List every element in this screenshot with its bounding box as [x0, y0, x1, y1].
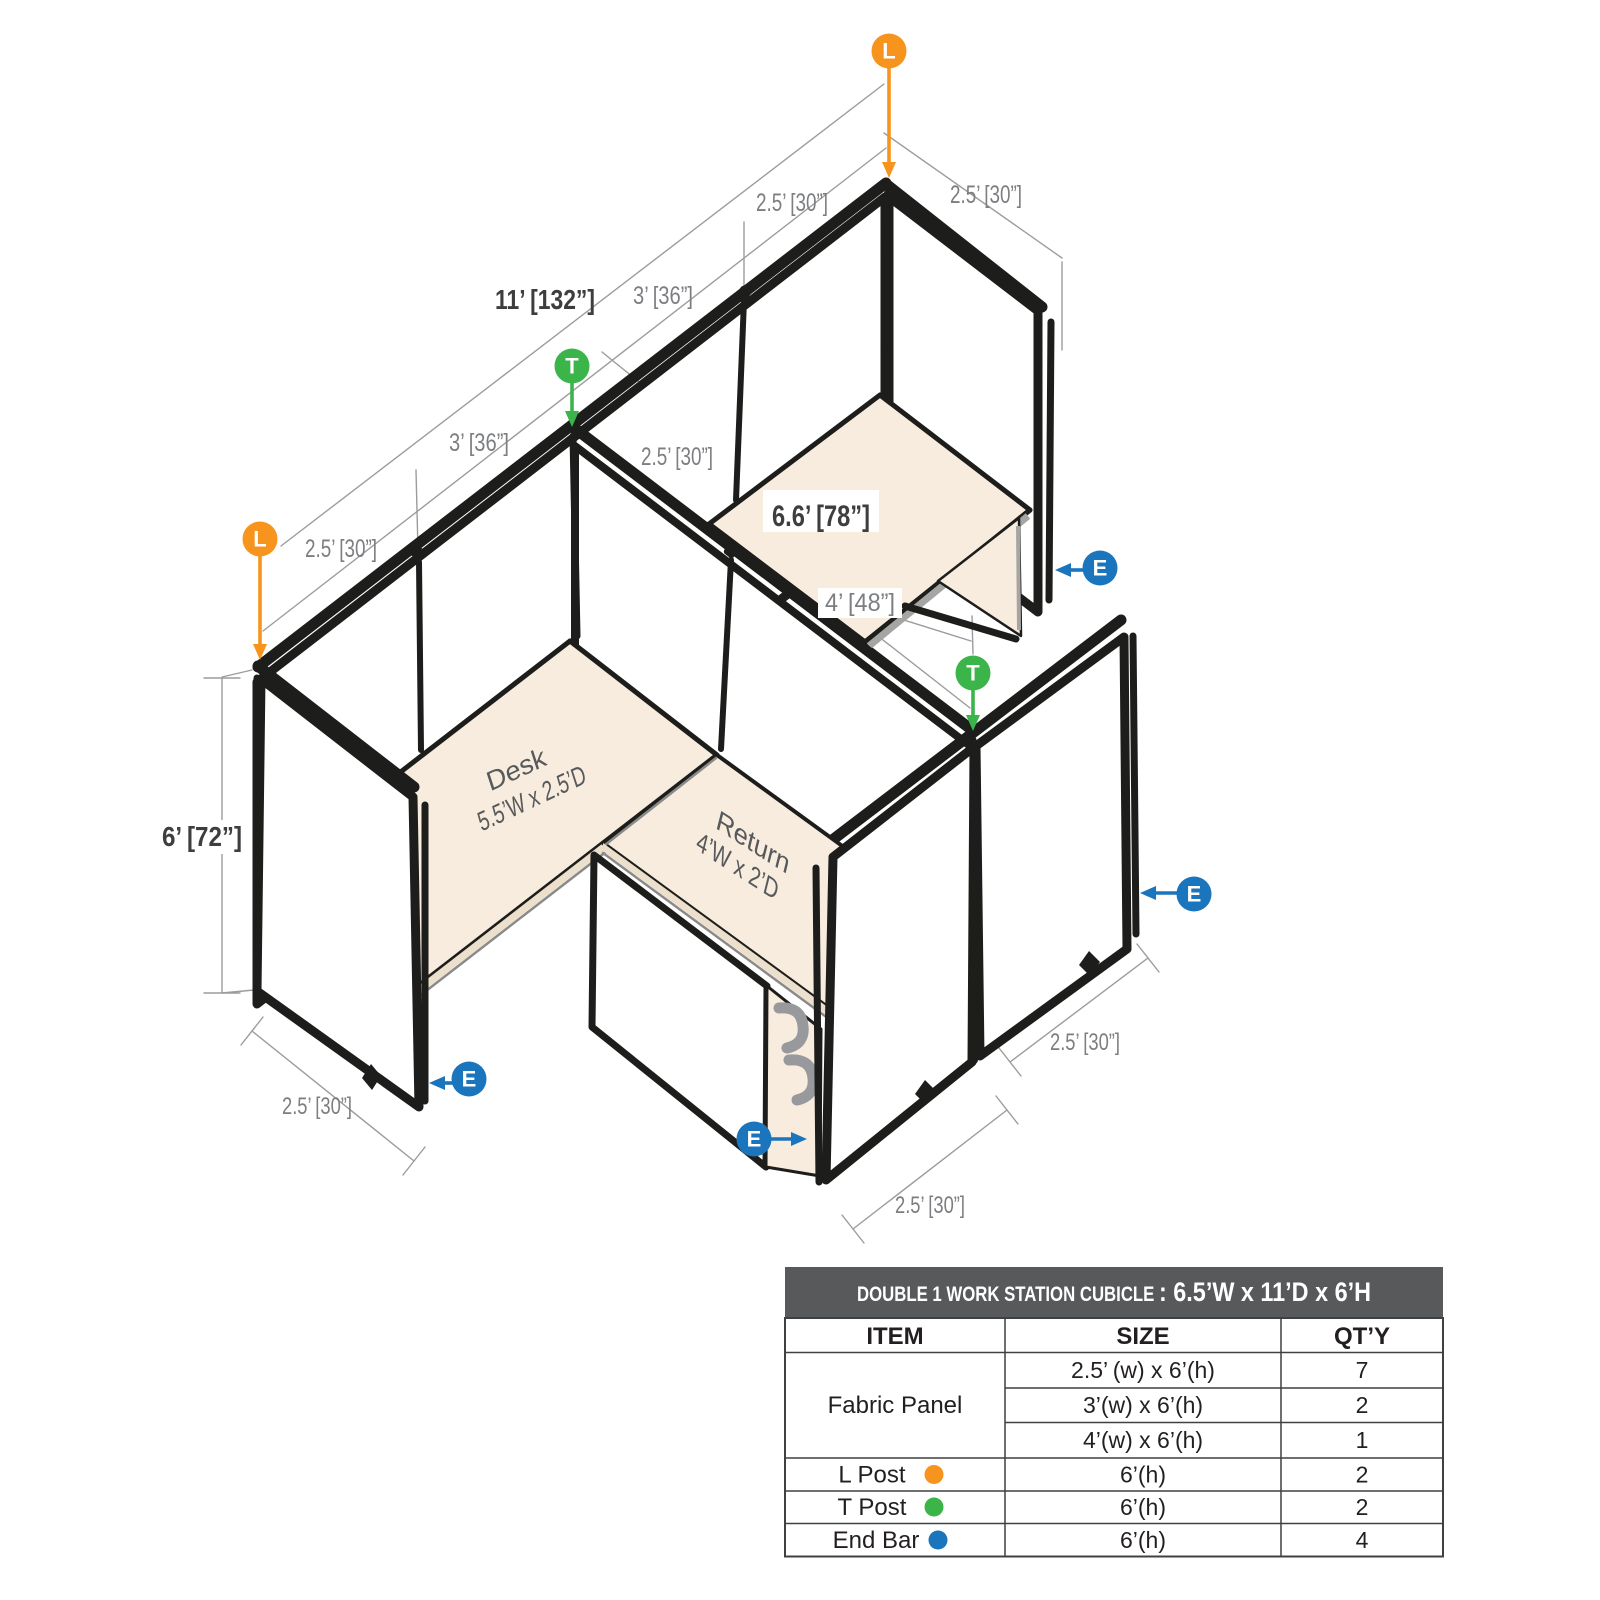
svg-text:2: 2 — [1356, 1462, 1369, 1488]
svg-text:L: L — [882, 39, 895, 64]
svg-text:End Bar: End Bar — [833, 1527, 920, 1554]
svg-text:2.5’ [30”]: 2.5’ [30”] — [282, 1093, 352, 1120]
svg-text:T: T — [966, 661, 980, 686]
svg-text:ITEM: ITEM — [866, 1323, 923, 1350]
svg-text:2.5’ (w) x 6’(h): 2.5’ (w) x 6’(h) — [1071, 1357, 1215, 1383]
svg-text:2: 2 — [1356, 1494, 1369, 1520]
svg-text:2.5’ [30”]: 2.5’ [30”] — [641, 443, 713, 471]
svg-text:E: E — [462, 1067, 477, 1092]
svg-text:T: T — [565, 354, 579, 379]
svg-text:2.5’ [30”]: 2.5’ [30”] — [950, 181, 1022, 209]
svg-text:2.5’ [30”]: 2.5’ [30”] — [1050, 1029, 1120, 1056]
svg-text:L: L — [253, 527, 266, 552]
svg-text:6.6’ [78”]: 6.6’ [78”] — [772, 500, 870, 533]
svg-text:3’(w) x 6’(h): 3’(w) x 6’(h) — [1083, 1392, 1203, 1418]
svg-text:6’(h): 6’(h) — [1120, 1494, 1166, 1520]
svg-text:2.5’ [30”]: 2.5’ [30”] — [756, 189, 828, 217]
svg-text:QT’Y: QT’Y — [1334, 1323, 1390, 1350]
svg-text:E: E — [1093, 556, 1108, 581]
svg-text:2.5’ [30”]: 2.5’ [30”] — [305, 535, 377, 563]
svg-text:SIZE: SIZE — [1116, 1323, 1169, 1350]
svg-text:6’(h): 6’(h) — [1120, 1462, 1166, 1488]
svg-text:6’(h): 6’(h) — [1120, 1527, 1166, 1553]
svg-text:2.5’ [30”]: 2.5’ [30”] — [895, 1192, 965, 1219]
svg-text:1: 1 — [1356, 1427, 1369, 1453]
svg-text:11’ [132”]: 11’ [132”] — [495, 284, 595, 315]
svg-text:3’ [36”]: 3’ [36”] — [633, 282, 693, 310]
svg-text:E: E — [747, 1127, 762, 1152]
svg-text:7: 7 — [1356, 1357, 1369, 1383]
svg-text:Fabric Panel: Fabric Panel — [828, 1392, 963, 1419]
svg-text:3’ [36”]: 3’ [36”] — [449, 429, 509, 457]
svg-text:4’(w) x 6’(h): 4’(w) x 6’(h) — [1083, 1427, 1203, 1453]
svg-text:4: 4 — [1356, 1527, 1369, 1553]
svg-text:T Post: T Post — [838, 1494, 907, 1521]
svg-text:4’ [48”]: 4’ [48”] — [825, 589, 895, 617]
svg-text:2: 2 — [1356, 1392, 1369, 1418]
svg-text:E: E — [1187, 882, 1202, 907]
svg-text:6’ [72”]: 6’ [72”] — [162, 821, 242, 852]
svg-text:L Post: L Post — [838, 1462, 905, 1489]
